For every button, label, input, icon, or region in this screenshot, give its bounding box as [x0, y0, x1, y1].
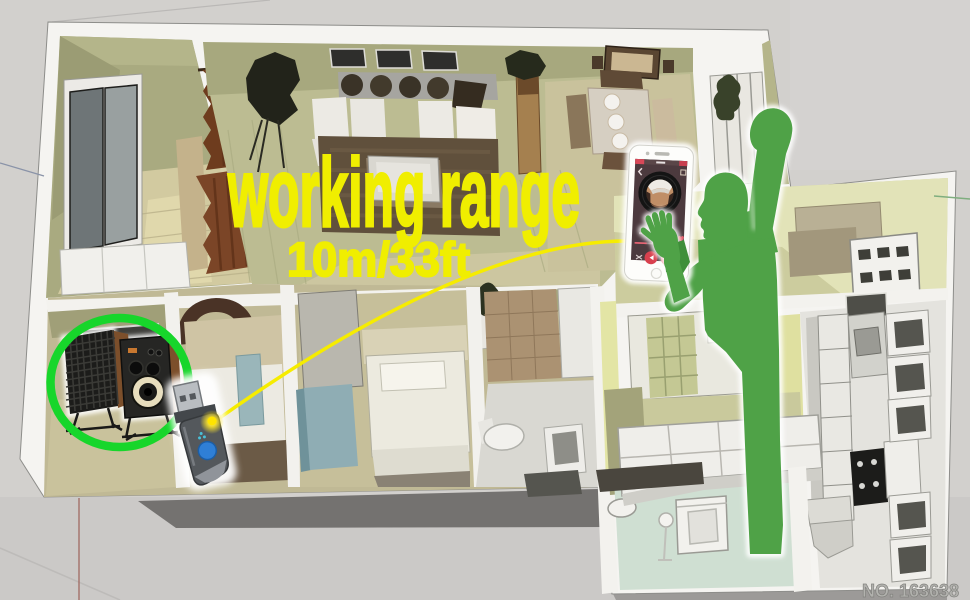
svg-text:10m/33ft: 10m/33ft [287, 234, 470, 287]
svg-text:working range: working range [227, 138, 580, 247]
svg-text:NO. 163638: NO. 163638 [862, 581, 959, 600]
